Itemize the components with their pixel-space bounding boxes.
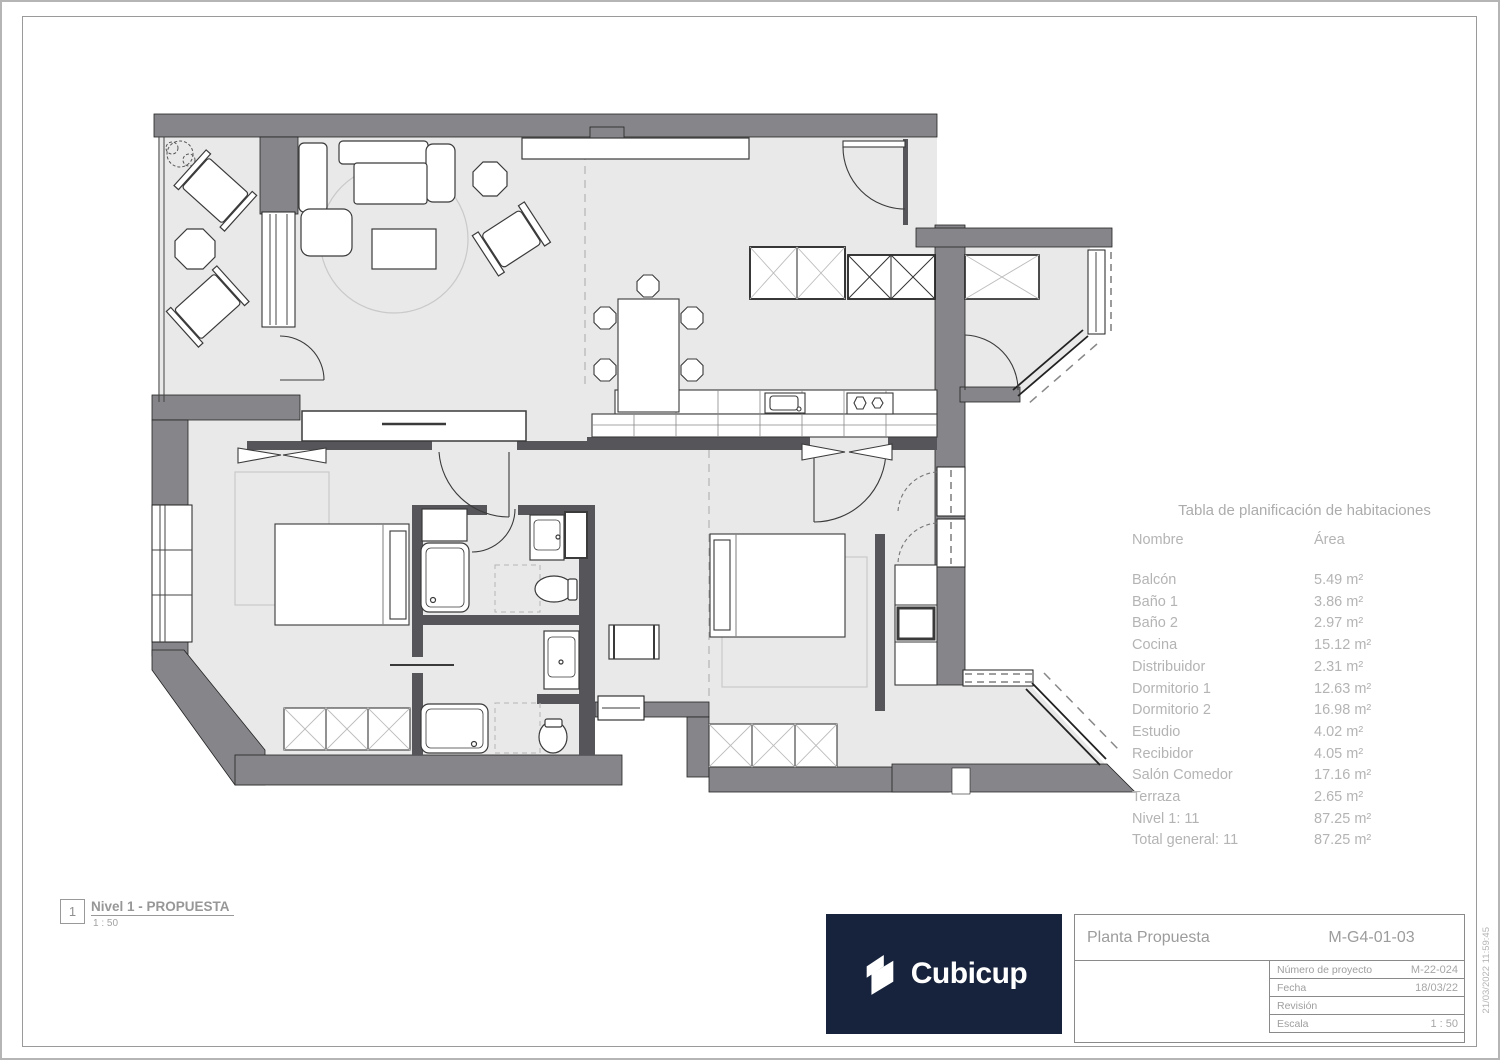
table-row: Balcón5.49 m²: [1132, 570, 1477, 592]
pillow: [714, 540, 730, 630]
field-value: M-22-024: [1411, 964, 1458, 976]
room-area: 3.86 m²: [1314, 592, 1363, 614]
table-row: Baño 22.97 m²: [1132, 613, 1477, 635]
view-meta: Nivel 1 - PROPUESTA 1 : 50: [91, 899, 234, 929]
room-area: 12.63 m²: [1314, 679, 1371, 701]
hob: [847, 393, 893, 414]
room-name: Balcón: [1132, 570, 1314, 592]
drawing-code: M-G4-01-03: [1279, 929, 1464, 947]
room-name: Baño 2: [1132, 613, 1314, 635]
table-row: Baño 13.86 m²: [1132, 592, 1477, 614]
toilet-1: [535, 576, 577, 602]
shower-2: [421, 704, 488, 753]
room-name: Salón Comedor: [1132, 765, 1314, 787]
bath-cabinet: [565, 512, 587, 558]
cubicup-logo-icon: [861, 950, 899, 998]
counter-lower: [592, 414, 937, 437]
column-header-area: Área: [1314, 532, 1345, 548]
table-row: Nivel 1: 1187.25 m²: [1132, 809, 1477, 831]
column-header-name: Nombre: [1132, 532, 1314, 548]
room-name: Dormitorio 2: [1132, 700, 1314, 722]
drawing-sheet: Tabla de planificación de habitaciones N…: [0, 0, 1500, 1060]
room-table-title: Tabla de planificación de habitaciones: [1132, 502, 1477, 519]
room-name: Baño 1: [1132, 592, 1314, 614]
room-area: 5.49 m²: [1314, 570, 1363, 592]
wall-shelf: [522, 138, 749, 159]
room-area: 4.02 m²: [1314, 722, 1363, 744]
room-area: 17.16 m²: [1314, 765, 1371, 787]
balcony-table: [175, 229, 215, 269]
view-title: Nivel 1 - PROPUESTA: [91, 899, 234, 916]
field-label: Escala: [1277, 1018, 1430, 1030]
print-timestamp: 21/03/2022 11:59:45: [1481, 927, 1495, 1052]
room-table-rows: Balcón5.49 m²Baño 13.86 m²Baño 22.97 m²C…: [1132, 570, 1477, 852]
title-block-field: Escala1 : 50: [1270, 1015, 1465, 1033]
logo-text: Cubicup: [911, 957, 1028, 991]
table-row: Recibidor4.05 m²: [1132, 744, 1477, 766]
title-block-fields: Número de proyectoM-22-024Fecha18/03/22R…: [1269, 961, 1465, 1033]
room-area: 2.65 m²: [1314, 787, 1363, 809]
room-area: 4.05 m²: [1314, 744, 1363, 766]
table-row: Salón Comedor17.16 m²: [1132, 765, 1477, 787]
view-number-badge: 1: [60, 899, 85, 924]
field-label: Fecha: [1277, 982, 1415, 994]
side-table: [473, 162, 507, 196]
title-block-field: Revisión: [1270, 997, 1465, 1015]
room-area: 87.25 m²: [1314, 830, 1371, 852]
table-row: Dormitorio 216.98 m²: [1132, 700, 1477, 722]
room-name: Dormitorio 1: [1132, 679, 1314, 701]
sink-2: [544, 631, 579, 689]
field-label: Revisión: [1277, 1000, 1458, 1012]
field-value: 1 : 50: [1430, 1018, 1458, 1030]
field-label: Número de proyecto: [1277, 964, 1411, 976]
room-table-header: Nombre Área: [1132, 532, 1477, 548]
room-name: Total general: 11: [1132, 830, 1314, 852]
washer: [422, 509, 467, 541]
wardrobe: [284, 708, 410, 750]
table-row: Total general: 1187.25 m²: [1132, 830, 1477, 852]
field-value: 18/03/22: [1415, 982, 1458, 994]
company-logo: Cubicup: [826, 914, 1062, 1034]
room-name: Nivel 1: 11: [1132, 809, 1314, 831]
room-name: Estudio: [1132, 722, 1314, 744]
sink: [765, 393, 805, 413]
view-label: 1 Nivel 1 - PROPUESTA 1 : 50: [60, 899, 234, 929]
pillow: [390, 531, 406, 619]
table-row: Terraza2.65 m²: [1132, 787, 1477, 809]
title-block-header: Planta Propuesta M-G4-01-03: [1075, 915, 1464, 961]
hall-desk: [609, 625, 659, 659]
wardrobe: [709, 724, 837, 767]
title-block-field: Fecha18/03/22: [1270, 979, 1465, 997]
room-name: Recibidor: [1132, 744, 1314, 766]
media-console: [302, 411, 526, 441]
room-area: 15.12 m²: [1314, 635, 1371, 657]
room-name: Terraza: [1132, 787, 1314, 809]
sink-1: [530, 515, 564, 560]
room-area: 2.97 m²: [1314, 613, 1363, 635]
room-name: Cocina: [1132, 635, 1314, 657]
coffee-table: [372, 229, 436, 269]
room-area: 87.25 m²: [1314, 809, 1371, 831]
shower-1: [421, 543, 469, 612]
terrace-wall-notch: [952, 768, 970, 794]
table-row: Estudio4.02 m²: [1132, 722, 1477, 744]
closet-column: [895, 565, 937, 685]
room-schedule-table: Tabla de planificación de habitaciones N…: [1132, 502, 1477, 852]
title-block: Planta Propuesta M-G4-01-03 Número de pr…: [1074, 914, 1465, 1043]
drawing-title: Planta Propuesta: [1075, 929, 1279, 947]
bed: [275, 524, 409, 625]
room-area: 16.98 m²: [1314, 700, 1371, 722]
title-block-field: Número de proyectoM-22-024: [1270, 961, 1465, 979]
table-row: Cocina15.12 m²: [1132, 635, 1477, 657]
tall-units: [750, 247, 1039, 299]
view-scale: 1 : 50: [91, 918, 234, 929]
room-name: Distribuidor: [1132, 657, 1314, 679]
table-row: Dormitorio 112.63 m²: [1132, 679, 1477, 701]
room-area: 2.31 m²: [1314, 657, 1363, 679]
table-row: Distribuidor2.31 m²: [1132, 657, 1477, 679]
